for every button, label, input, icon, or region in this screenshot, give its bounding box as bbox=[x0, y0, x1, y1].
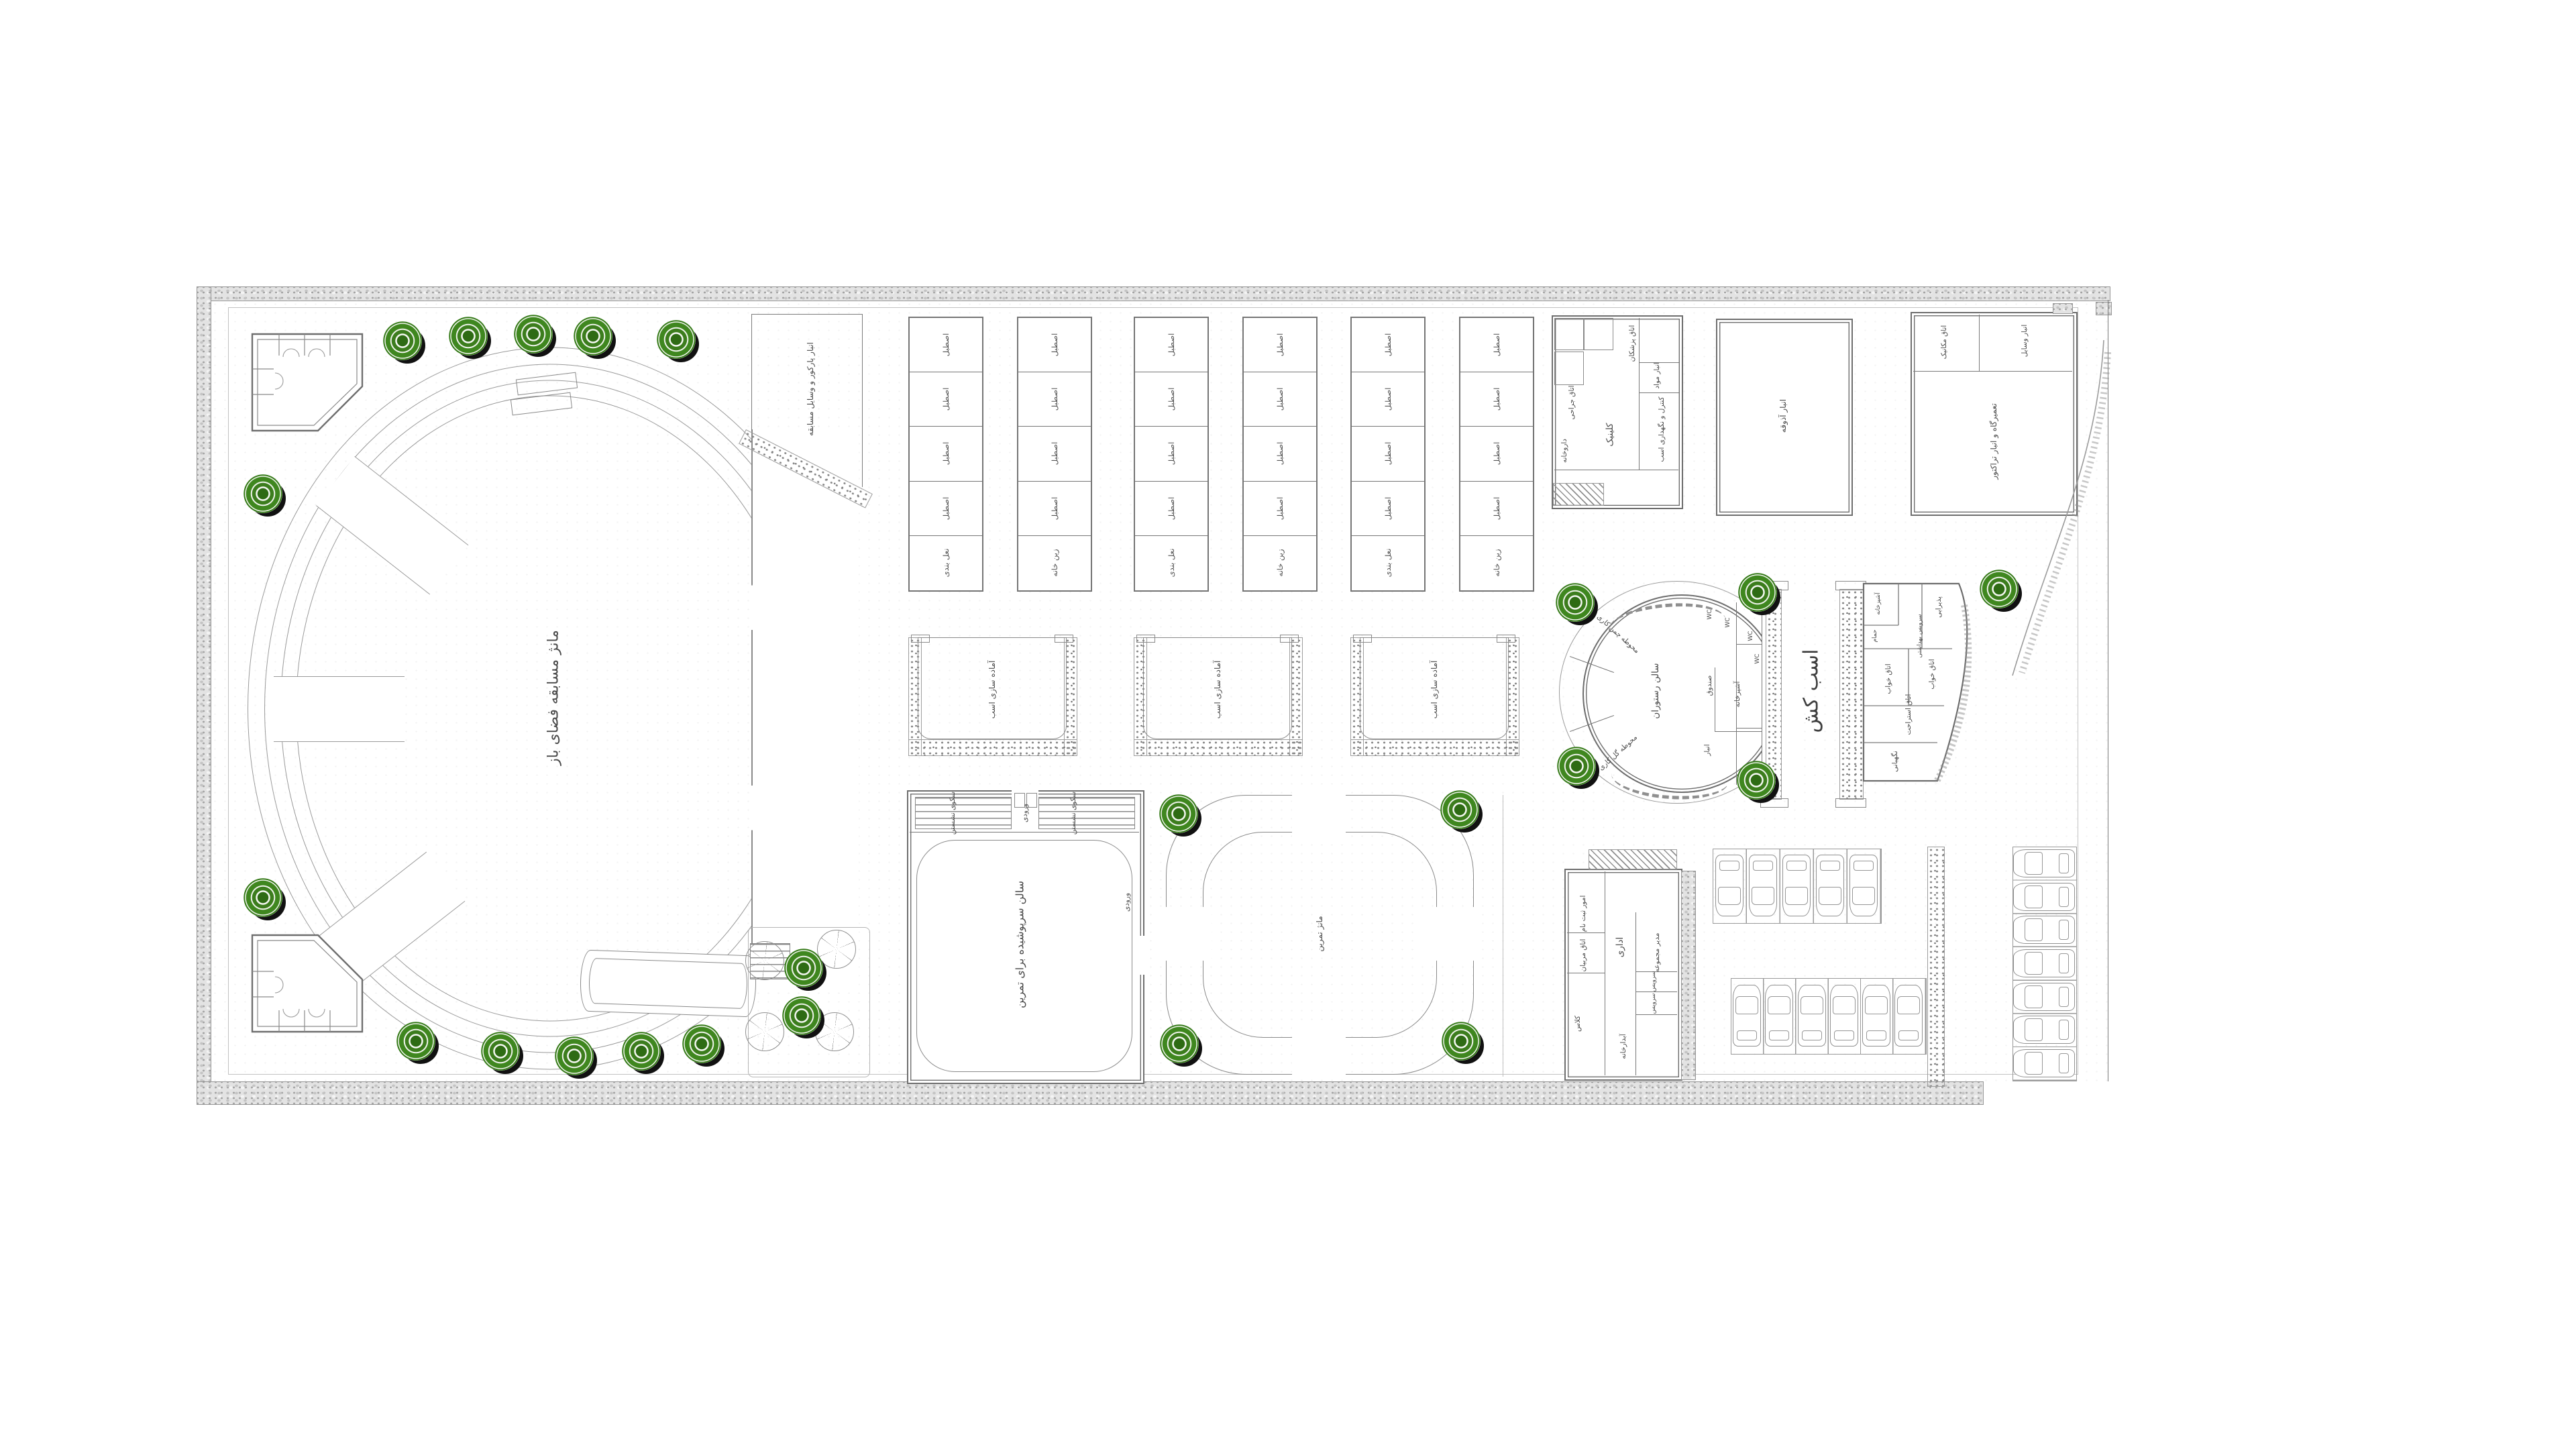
restaurant-wall bbox=[1715, 731, 1762, 732]
clinic-room-label: انبار مواد bbox=[1653, 362, 1661, 388]
boundary-top bbox=[197, 286, 2110, 301]
tree-symbol bbox=[682, 1024, 721, 1063]
stable-cell-label: اصطبل bbox=[1167, 388, 1176, 411]
paddock: آماده سازی اسب bbox=[1134, 637, 1301, 755]
paddock-label: آماده سازی اسب bbox=[987, 661, 997, 719]
stable-cell-label: اصطبل bbox=[1383, 442, 1393, 466]
stable-cell-label: اصطبل bbox=[1050, 388, 1059, 411]
stable-cell: اصطبل bbox=[1135, 372, 1207, 427]
tree-symbol bbox=[1159, 794, 1198, 833]
car-symbol bbox=[1862, 985, 1890, 1046]
stable-cell: اصطبل bbox=[1244, 318, 1316, 372]
stable-cell-label: نعل بندی bbox=[1383, 549, 1393, 578]
stable-cell: زین خانه bbox=[1460, 536, 1533, 590]
stable-cell: اصطبل bbox=[1352, 372, 1424, 427]
hall-band-line bbox=[910, 832, 1139, 833]
tree-symbol bbox=[244, 878, 282, 917]
stadium-path-w bbox=[274, 676, 405, 742]
hall-seating-label: سکوی نشستن bbox=[949, 792, 957, 835]
admin-room-label: سرویس bbox=[1650, 971, 1657, 992]
tree-symbol bbox=[396, 1022, 435, 1061]
clinic-room-label: اتاق جراحی bbox=[1568, 386, 1576, 420]
stable-column: اصطبلاصطبلاصطبلاصطبلزین خانه bbox=[1017, 317, 1092, 592]
restaurant-wall bbox=[1715, 667, 1715, 731]
stable-column: اصطبلاصطبلاصطبلاصطبلنعل بندی bbox=[908, 317, 983, 592]
stable-cell-label: اصطبل bbox=[1492, 388, 1501, 411]
locker-building-sw bbox=[247, 930, 368, 1036]
admin-room-label: کلاس bbox=[1574, 1016, 1582, 1032]
ring-label: مانژ تمرین bbox=[1315, 916, 1324, 951]
admin-wall bbox=[1567, 932, 1605, 933]
stable-cell-label: نعل بندی bbox=[1167, 549, 1176, 578]
tree-symbol bbox=[1556, 583, 1595, 622]
admin-name: اداری bbox=[1615, 937, 1625, 958]
house-room-label: اتاق خواب bbox=[1884, 663, 1892, 694]
stable-cell: اصطبل bbox=[1460, 372, 1533, 427]
stable-cell-label: اصطبل bbox=[1492, 442, 1501, 466]
car-symbol bbox=[2013, 1016, 2075, 1044]
stable-cell: اصطبل bbox=[1018, 318, 1091, 372]
stable-cell: اصطبل bbox=[1018, 427, 1091, 481]
hall-seating-steps bbox=[1038, 797, 1135, 829]
car-symbol bbox=[1830, 985, 1858, 1046]
paddock-gate-stub bbox=[1280, 635, 1299, 643]
stable-cell: اصطبل bbox=[1460, 318, 1533, 372]
house-room-label: حمام bbox=[1872, 629, 1878, 642]
admin-wall bbox=[1605, 871, 1605, 1075]
admin-pergola bbox=[1589, 849, 1677, 869]
boundary-left bbox=[197, 286, 211, 1105]
paddock-label: آماده سازی اسب bbox=[1213, 661, 1222, 719]
stable-cell-label: اصطبل bbox=[1050, 333, 1059, 357]
horse-lane-label: اسب کش bbox=[1800, 649, 1823, 733]
admin-room-label: امور ثبت نام bbox=[1579, 896, 1587, 932]
stable-cell-label: اصطبل bbox=[1383, 496, 1393, 520]
paddock-gate-stub bbox=[1136, 635, 1155, 643]
admin-wall bbox=[1635, 912, 1636, 1075]
house-room-label: آشپزخانه bbox=[1875, 592, 1882, 614]
stable-cell: اصطبل bbox=[910, 372, 982, 427]
stable-cell: زین خانه bbox=[1244, 536, 1316, 590]
clinic-room bbox=[1584, 318, 1613, 350]
restaurant-store-label: انبار bbox=[1703, 744, 1711, 755]
stable-cell: اصطبل bbox=[1018, 372, 1091, 427]
clinic-wall bbox=[1639, 392, 1679, 393]
tree-symbol bbox=[383, 321, 422, 360]
stable-cell: اصطبل bbox=[1352, 427, 1424, 481]
hall-label: سالن سرپوشیده برای تمرین bbox=[1014, 881, 1026, 1008]
yard-wall bbox=[751, 314, 752, 431]
stable-cell-label: زین خانه bbox=[1492, 549, 1501, 577]
stable-cell: اصطبل bbox=[1460, 427, 1533, 481]
stable-cell: اصطبل bbox=[1018, 482, 1091, 536]
stable-cell: اصطبل bbox=[910, 318, 982, 372]
stable-column: اصطبلاصطبلاصطبلاصطبلنعل بندی bbox=[1134, 317, 1209, 592]
stable-column: اصطبلاصطبلاصطبلاصطبلزین خانه bbox=[1459, 317, 1534, 592]
restaurant-wall bbox=[1736, 728, 1762, 729]
parasol-symbol bbox=[745, 941, 784, 980]
clinic-room-label: کنترل و نگهداری اسب bbox=[1658, 396, 1666, 462]
stadium-edge-line bbox=[751, 429, 753, 986]
locker-building-nw bbox=[247, 330, 368, 436]
lane-cap bbox=[1835, 798, 1866, 808]
tree-symbol bbox=[622, 1032, 661, 1071]
tree-symbol bbox=[784, 949, 823, 987]
tree-symbol bbox=[1440, 790, 1479, 829]
stable-cell-label: نعل بندی bbox=[941, 549, 951, 578]
stable-cell: نعل بندی bbox=[1135, 536, 1207, 590]
wc-label: WC bbox=[1707, 609, 1713, 619]
paddock-gate-stub bbox=[1055, 635, 1073, 643]
clinic-pergola bbox=[1553, 483, 1604, 506]
stadium-label: مانژ مسابقه فضای باز bbox=[545, 630, 562, 765]
stable-cell-label: اصطبل bbox=[1167, 333, 1176, 357]
paddock-gate-stub bbox=[1353, 635, 1372, 643]
car-symbol bbox=[2013, 983, 2075, 1011]
tree-symbol bbox=[782, 996, 821, 1035]
tree-symbol bbox=[1738, 573, 1777, 612]
hall-entrance-label: ورودی bbox=[1021, 804, 1029, 822]
paddock-gate-stub bbox=[1497, 635, 1515, 643]
tree-symbol bbox=[244, 474, 282, 513]
stable-block: اصطبلاصطبلاصطبلاصطبلنعل بندی اصطبلاصطبلا… bbox=[908, 317, 1092, 592]
hall-side-entrance-gap bbox=[1135, 936, 1144, 975]
car-symbol bbox=[1894, 985, 1923, 1046]
stable-cell: اصطبل bbox=[1460, 482, 1533, 536]
admin-room-label: اتاق مربیان bbox=[1579, 939, 1587, 972]
stadium-flat-edge bbox=[751, 429, 859, 986]
house-room-label: پذیرایی bbox=[1935, 596, 1943, 618]
car-symbol bbox=[1733, 985, 1761, 1046]
admin-room-label: مدیر مجموعه bbox=[1653, 933, 1661, 973]
obstacle-store-label: انبار پارکور و وسایل مسابقه bbox=[806, 342, 815, 436]
tree-symbol bbox=[1737, 761, 1776, 800]
paddock-gate-stub bbox=[911, 635, 930, 643]
tree-symbol bbox=[1980, 570, 2019, 608]
clinic-room-label: اتاق پزشکان bbox=[1628, 325, 1636, 362]
stable-cell-label: اصطبل bbox=[1167, 496, 1176, 520]
tree-symbol bbox=[657, 320, 696, 359]
paddock: آماده سازی اسب bbox=[908, 637, 1076, 755]
car-symbol bbox=[2013, 883, 2075, 911]
stand-bar-inner bbox=[588, 958, 748, 1009]
ring-gap-left bbox=[1159, 907, 1212, 961]
clinic-room bbox=[1554, 352, 1584, 385]
tree-symbol bbox=[1557, 747, 1596, 786]
stable-cell-label: اصطبل bbox=[1275, 496, 1285, 520]
tree-symbol bbox=[449, 317, 488, 356]
clinic-room-label: داروخانه bbox=[1560, 439, 1568, 463]
stable-cell: نعل بندی bbox=[910, 536, 982, 590]
admin-wall bbox=[1567, 973, 1605, 973]
car-symbol bbox=[2013, 949, 2075, 977]
admin-stone-strip bbox=[1681, 871, 1696, 1080]
stable-cell: اصطبل bbox=[1352, 482, 1424, 536]
stable-block: اصطبلاصطبلاصطبلاصطبلنعل بندی اصطبلاصطبلا… bbox=[1134, 317, 1318, 592]
hall-seating-label: سکوی نشستن bbox=[1069, 792, 1077, 835]
boundary-bottom bbox=[197, 1081, 1984, 1105]
stable-cell-label: اصطبل bbox=[1275, 333, 1285, 357]
stable-cell-label: اصطبل bbox=[941, 388, 951, 411]
ring-gap-top bbox=[1292, 789, 1346, 841]
wc-label: WC bbox=[1748, 631, 1754, 641]
tree-symbol bbox=[1442, 1022, 1481, 1061]
car-symbol bbox=[2013, 1049, 2075, 1077]
stable-cell: اصطبل bbox=[910, 427, 982, 481]
ring-gap-bottom bbox=[1292, 1025, 1346, 1077]
stable-cell: اصطبل bbox=[910, 482, 982, 536]
clinic-wall bbox=[1554, 470, 1678, 470]
stable-cell-label: اصطبل bbox=[1383, 333, 1393, 357]
house-room-label: نگهبانی bbox=[1891, 751, 1899, 772]
restaurant-kitchen-label: آشپزخانه bbox=[1733, 682, 1741, 708]
admin-room-label: آبدارخانه bbox=[1619, 1034, 1627, 1059]
parking-hedge bbox=[1927, 847, 1945, 1087]
paddock: آماده سازی اسب bbox=[1350, 637, 1518, 755]
car-symbol bbox=[1782, 855, 1811, 916]
hall-seating-steps bbox=[915, 797, 1012, 829]
site-plan: مانژ مسابقه فضای باز انبار پارکور و وسای… bbox=[0, 0, 2576, 1449]
zone-divider bbox=[1503, 795, 1503, 1077]
car-symbol bbox=[1849, 855, 1878, 916]
wc-label: WC bbox=[1754, 653, 1761, 663]
restaurant-hall-label: سالن رستوران bbox=[1650, 663, 1661, 718]
wc-label: WC bbox=[1725, 617, 1731, 627]
stable-cell-label: اصطبل bbox=[1050, 442, 1059, 466]
stable-block: اصطبلاصطبلاصطبلاصطبلنعل بندی اصطبلاصطبلا… bbox=[1350, 317, 1534, 592]
clinic-name: کلینیک bbox=[1605, 423, 1615, 446]
stable-cell-label: اصطبل bbox=[1383, 388, 1393, 411]
clinic-room bbox=[1554, 318, 1584, 350]
restaurant-cashier-label: صندوق bbox=[1705, 676, 1713, 696]
stable-cell-label: اصطبل bbox=[1492, 496, 1501, 520]
stable-cell-label: اصطبل bbox=[1492, 333, 1501, 357]
hall-side-entrance-label: ورودی bbox=[1123, 893, 1131, 912]
stable-column: اصطبلاصطبلاصطبلاصطبلنعل بندی bbox=[1350, 317, 1426, 592]
stable-cell-label: اصطبل bbox=[1167, 442, 1176, 466]
stable-column: اصطبلاصطبلاصطبلاصطبلزین خانه bbox=[1242, 317, 1318, 592]
admin-wall bbox=[1635, 1014, 1677, 1015]
restaurant-wall bbox=[1736, 644, 1762, 645]
car-symbol bbox=[1798, 985, 1826, 1046]
paddock-hedge-bottom bbox=[1350, 739, 1519, 756]
stable-cell: زین خانه bbox=[1018, 536, 1091, 590]
paddock-label: آماده سازی اسب bbox=[1430, 661, 1439, 719]
stable-cell-label: اصطبل bbox=[1275, 388, 1285, 411]
admin-room-label: سرویس bbox=[1650, 994, 1657, 1014]
stable-cell: اصطبل bbox=[1352, 318, 1424, 372]
stable-cell: اصطبل bbox=[1135, 482, 1207, 536]
tree-symbol bbox=[555, 1036, 594, 1075]
stable-cell-label: اصطبل bbox=[1275, 442, 1285, 466]
tree-symbol bbox=[1160, 1024, 1199, 1063]
house-room-label: سرویس بهداشتی bbox=[1917, 614, 1923, 657]
paddock-hedge-bottom bbox=[908, 739, 1077, 756]
stable-cell: اصطبل bbox=[1244, 482, 1316, 536]
stable-cell-label: اصطبل bbox=[1050, 496, 1059, 520]
yard-wall bbox=[751, 314, 862, 315]
tree-symbol bbox=[514, 315, 553, 354]
stable-cell-label: اصطبل bbox=[941, 333, 951, 357]
car-symbol bbox=[1765, 985, 1793, 1046]
clinic-wall bbox=[1639, 318, 1640, 470]
stable-cell: اصطبل bbox=[1135, 318, 1207, 372]
tree-symbol bbox=[481, 1032, 520, 1071]
car-symbol bbox=[1715, 855, 1743, 916]
stable-cell: اصطبل bbox=[1244, 427, 1316, 481]
stable-cell-label: اصطبل bbox=[941, 496, 951, 520]
paddock-hedge-bottom bbox=[1134, 739, 1303, 756]
stable-cell-label: اصطبل bbox=[941, 442, 951, 466]
lane-cap bbox=[1760, 798, 1788, 808]
stable-cell-label: زین خانه bbox=[1050, 549, 1059, 577]
stable-cell-label: زین خانه bbox=[1275, 549, 1285, 577]
stable-cell: نعل بندی bbox=[1352, 536, 1424, 590]
parasol-symbol bbox=[817, 930, 856, 969]
car-symbol bbox=[2013, 916, 2075, 944]
car-symbol bbox=[1749, 855, 1777, 916]
stable-cell: اصطبل bbox=[1135, 427, 1207, 481]
car-symbol bbox=[2013, 849, 2075, 877]
house-room-label: اتاق استراحت bbox=[1904, 694, 1913, 735]
ring-gap-right bbox=[1421, 907, 1477, 961]
feed-label: انبار آذوقه bbox=[1778, 399, 1788, 433]
yard-wall bbox=[862, 314, 863, 487]
car-symbol bbox=[1816, 855, 1844, 916]
stable-cell: اصطبل bbox=[1244, 372, 1316, 427]
parasol-symbol bbox=[745, 1012, 784, 1051]
workshop-room-label: اتاق مکانیک bbox=[1940, 325, 1948, 360]
tree-symbol bbox=[574, 317, 612, 356]
house-room-label: اتاق خواب bbox=[1928, 659, 1936, 689]
